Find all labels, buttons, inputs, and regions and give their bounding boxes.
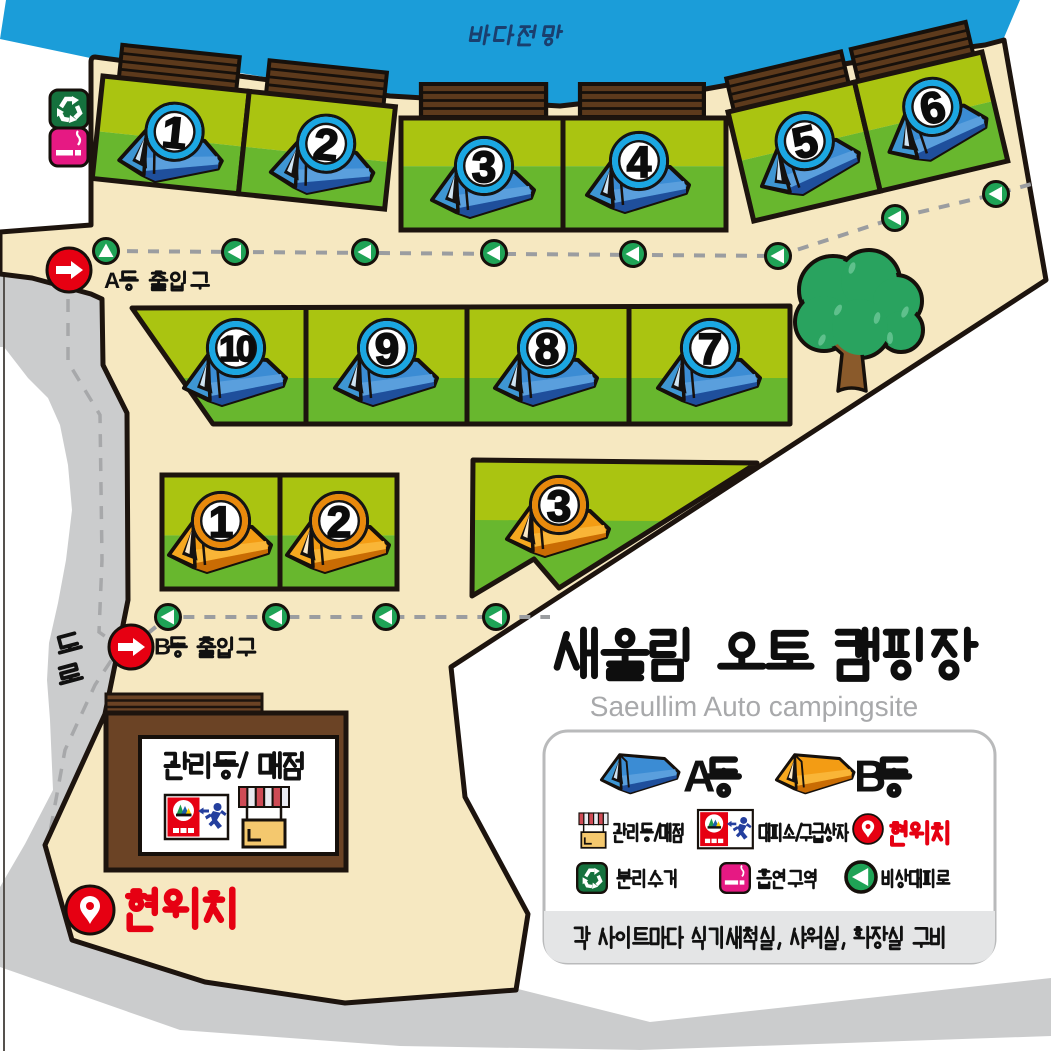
svg-text:2: 2 [311, 120, 340, 171]
svg-text:10: 10 [219, 328, 255, 369]
svg-text:1: 1 [209, 498, 233, 547]
svg-text:A: A [104, 268, 120, 293]
svg-text:2: 2 [327, 498, 351, 547]
svg-text:8: 8 [535, 325, 559, 374]
svg-text:3: 3 [472, 143, 496, 192]
svg-text:1: 1 [160, 108, 189, 159]
svg-text:3: 3 [547, 482, 571, 531]
svg-text:Saeullim Auto campingsite: Saeullim Auto campingsite [590, 691, 918, 722]
svg-text:9: 9 [375, 325, 399, 374]
svg-text:4: 4 [627, 138, 652, 187]
svg-text:7: 7 [698, 325, 722, 374]
